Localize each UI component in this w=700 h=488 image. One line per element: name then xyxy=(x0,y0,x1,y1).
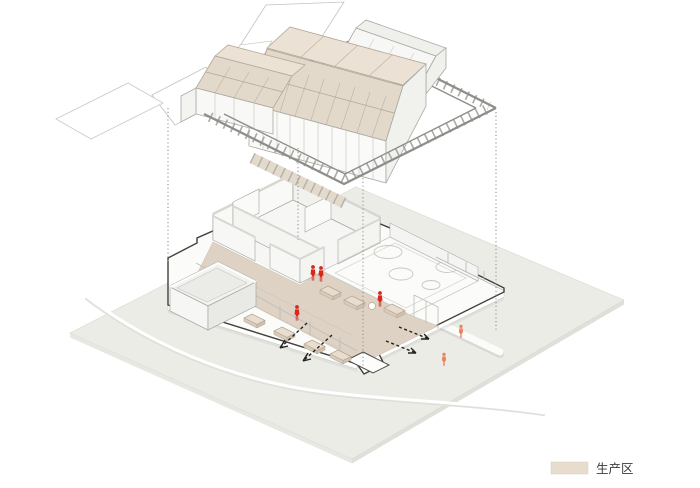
axonometric-diagram: 生产区 xyxy=(0,0,700,488)
roof-structure xyxy=(56,2,496,203)
legend: 生产区 xyxy=(551,461,634,476)
legend-label: 生产区 xyxy=(596,461,634,476)
diagram-svg: 生产区 xyxy=(0,0,700,488)
table xyxy=(369,303,376,310)
legend-swatch xyxy=(551,462,588,474)
